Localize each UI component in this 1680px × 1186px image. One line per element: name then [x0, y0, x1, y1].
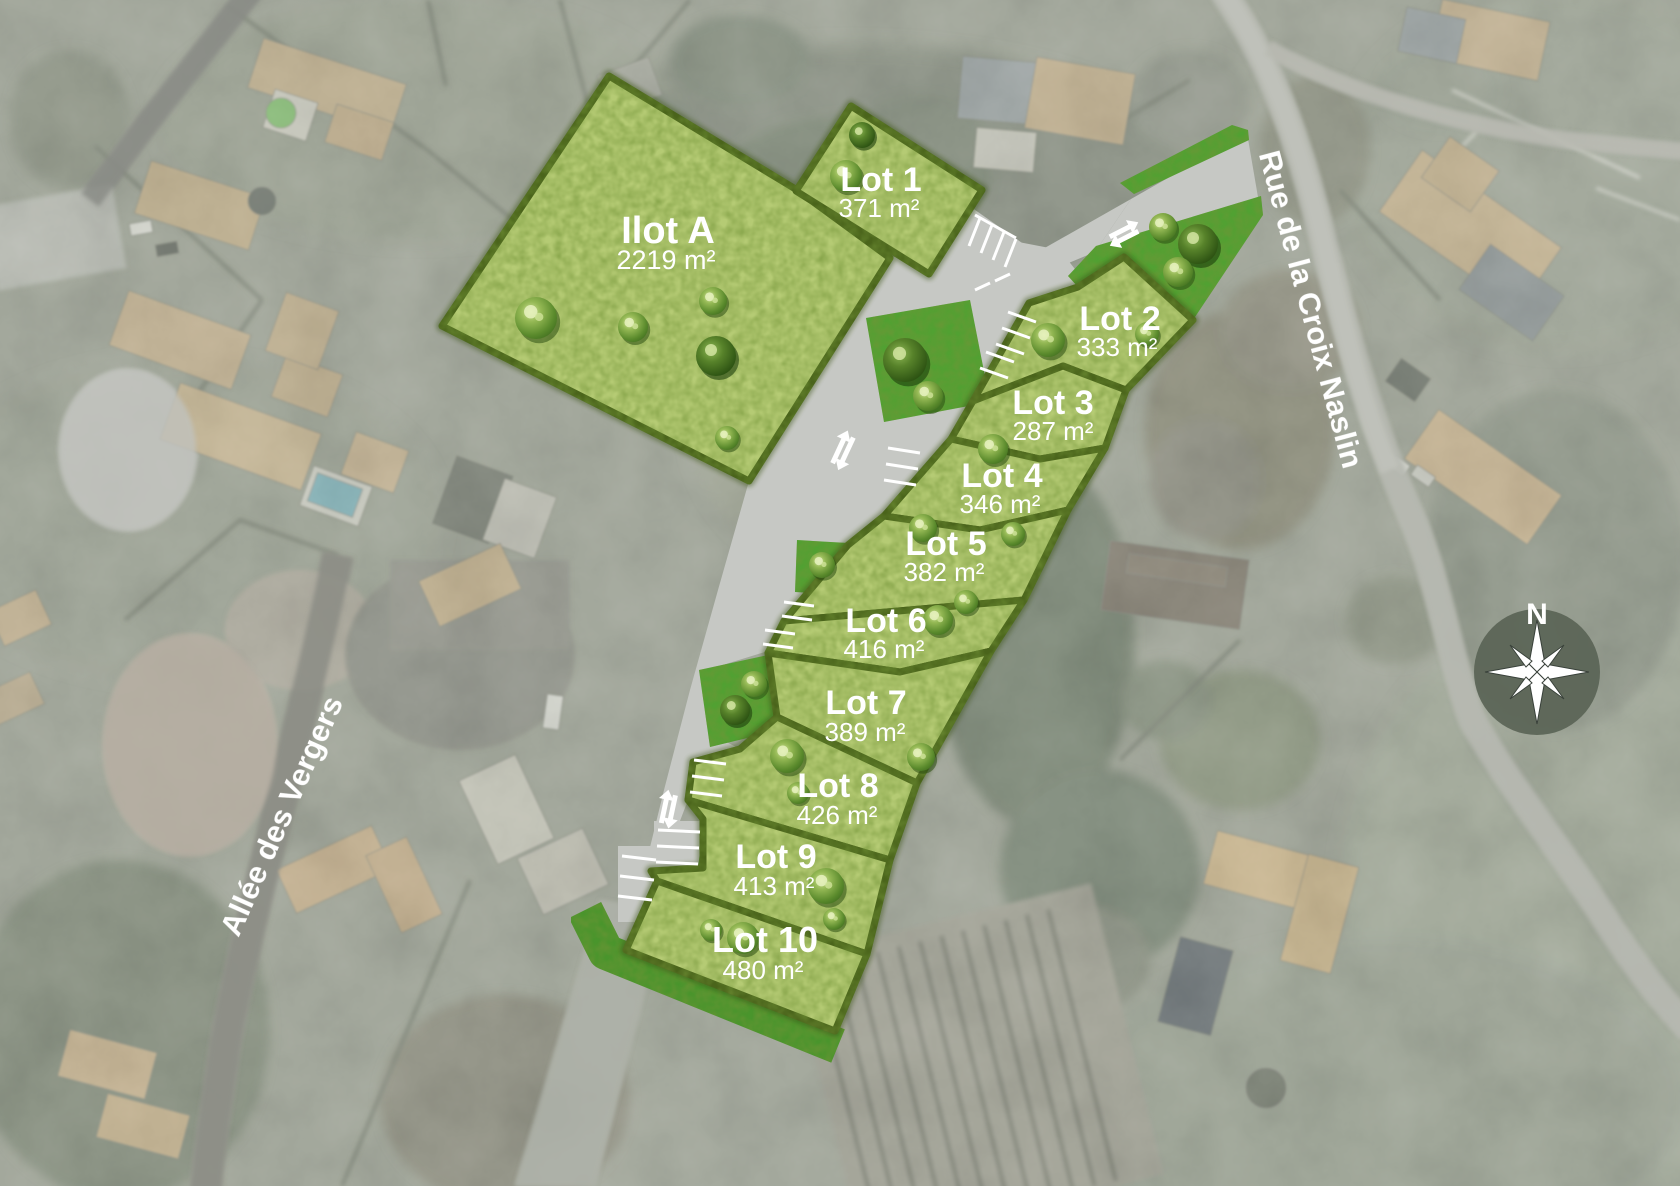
svg-text:426 m²: 426 m²: [797, 800, 878, 830]
svg-text:287 m²: 287 m²: [1013, 416, 1094, 446]
svg-text:2219 m²: 2219 m²: [616, 245, 715, 275]
svg-text:346 m²: 346 m²: [960, 489, 1041, 519]
svg-text:382 m²: 382 m²: [904, 557, 985, 587]
svg-text:N: N: [1526, 598, 1548, 631]
svg-text:416 m²: 416 m²: [844, 634, 925, 664]
svg-text:389 m²: 389 m²: [825, 717, 906, 747]
svg-text:413 m²: 413 m²: [734, 871, 815, 901]
svg-text:Lot 10: Lot 10: [712, 919, 818, 960]
svg-text:480 m²: 480 m²: [723, 955, 804, 985]
svg-text:371 m²: 371 m²: [839, 193, 920, 223]
svg-text:333 m²: 333 m²: [1077, 332, 1158, 362]
